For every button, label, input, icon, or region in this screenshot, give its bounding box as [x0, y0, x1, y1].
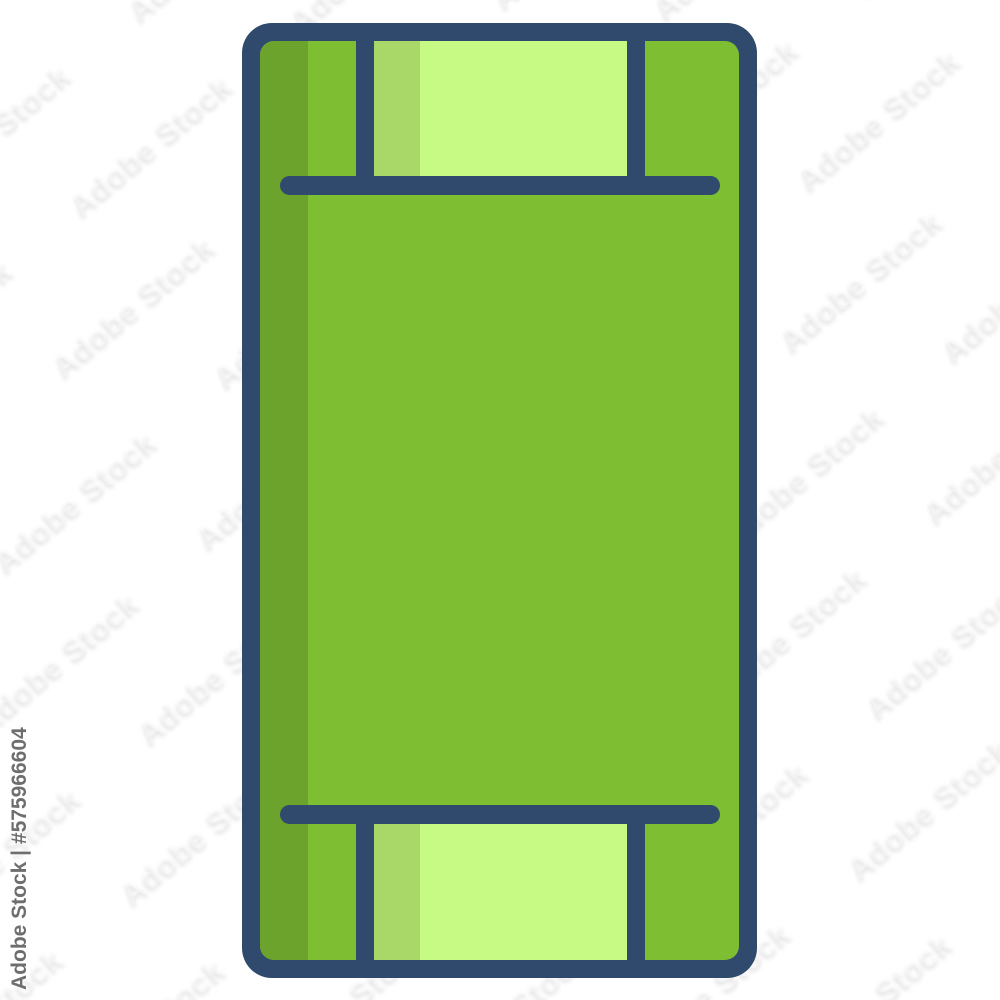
top-crease-area [420, 41, 627, 176]
top-left-crease-line [356, 41, 374, 191]
top-popping-crease-bar [280, 176, 720, 195]
bottom-left-crease-line [356, 809, 374, 960]
watermark-asset-id: Adobe Stock | #575966604 [8, 727, 32, 990]
cricket-pitch-icon [242, 23, 757, 978]
bottom-crease-area [420, 823, 627, 960]
bottom-crease-area-shade [374, 823, 420, 960]
top-right-crease-line [627, 41, 645, 191]
bottom-right-crease-line [627, 809, 645, 960]
top-crease-area-shade [374, 41, 420, 176]
stock-image-preview: Adobe Stock Adobe Stock Adobe Stock Adob… [0, 0, 1000, 1000]
pitch-body [260, 41, 739, 960]
bottom-popping-crease-bar [280, 805, 720, 824]
